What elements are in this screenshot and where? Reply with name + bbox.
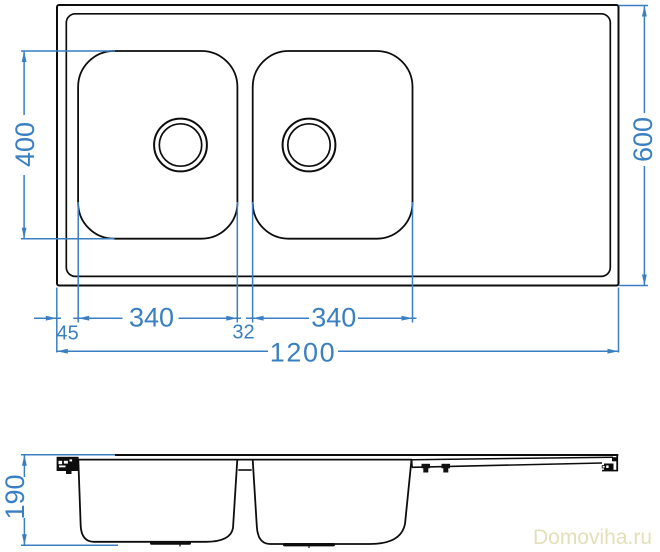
svg-text:32: 32 — [232, 321, 254, 343]
svg-text:1200: 1200 — [270, 337, 336, 367]
svg-text:45: 45 — [56, 322, 78, 344]
svg-text:340: 340 — [311, 302, 356, 332]
svg-text:190: 190 — [0, 474, 30, 519]
svg-text:600: 600 — [628, 117, 658, 162]
svg-text:400: 400 — [10, 122, 40, 167]
svg-text:340: 340 — [129, 302, 174, 332]
svg-text:Domoviha.ru: Domoviha.ru — [533, 526, 652, 549]
